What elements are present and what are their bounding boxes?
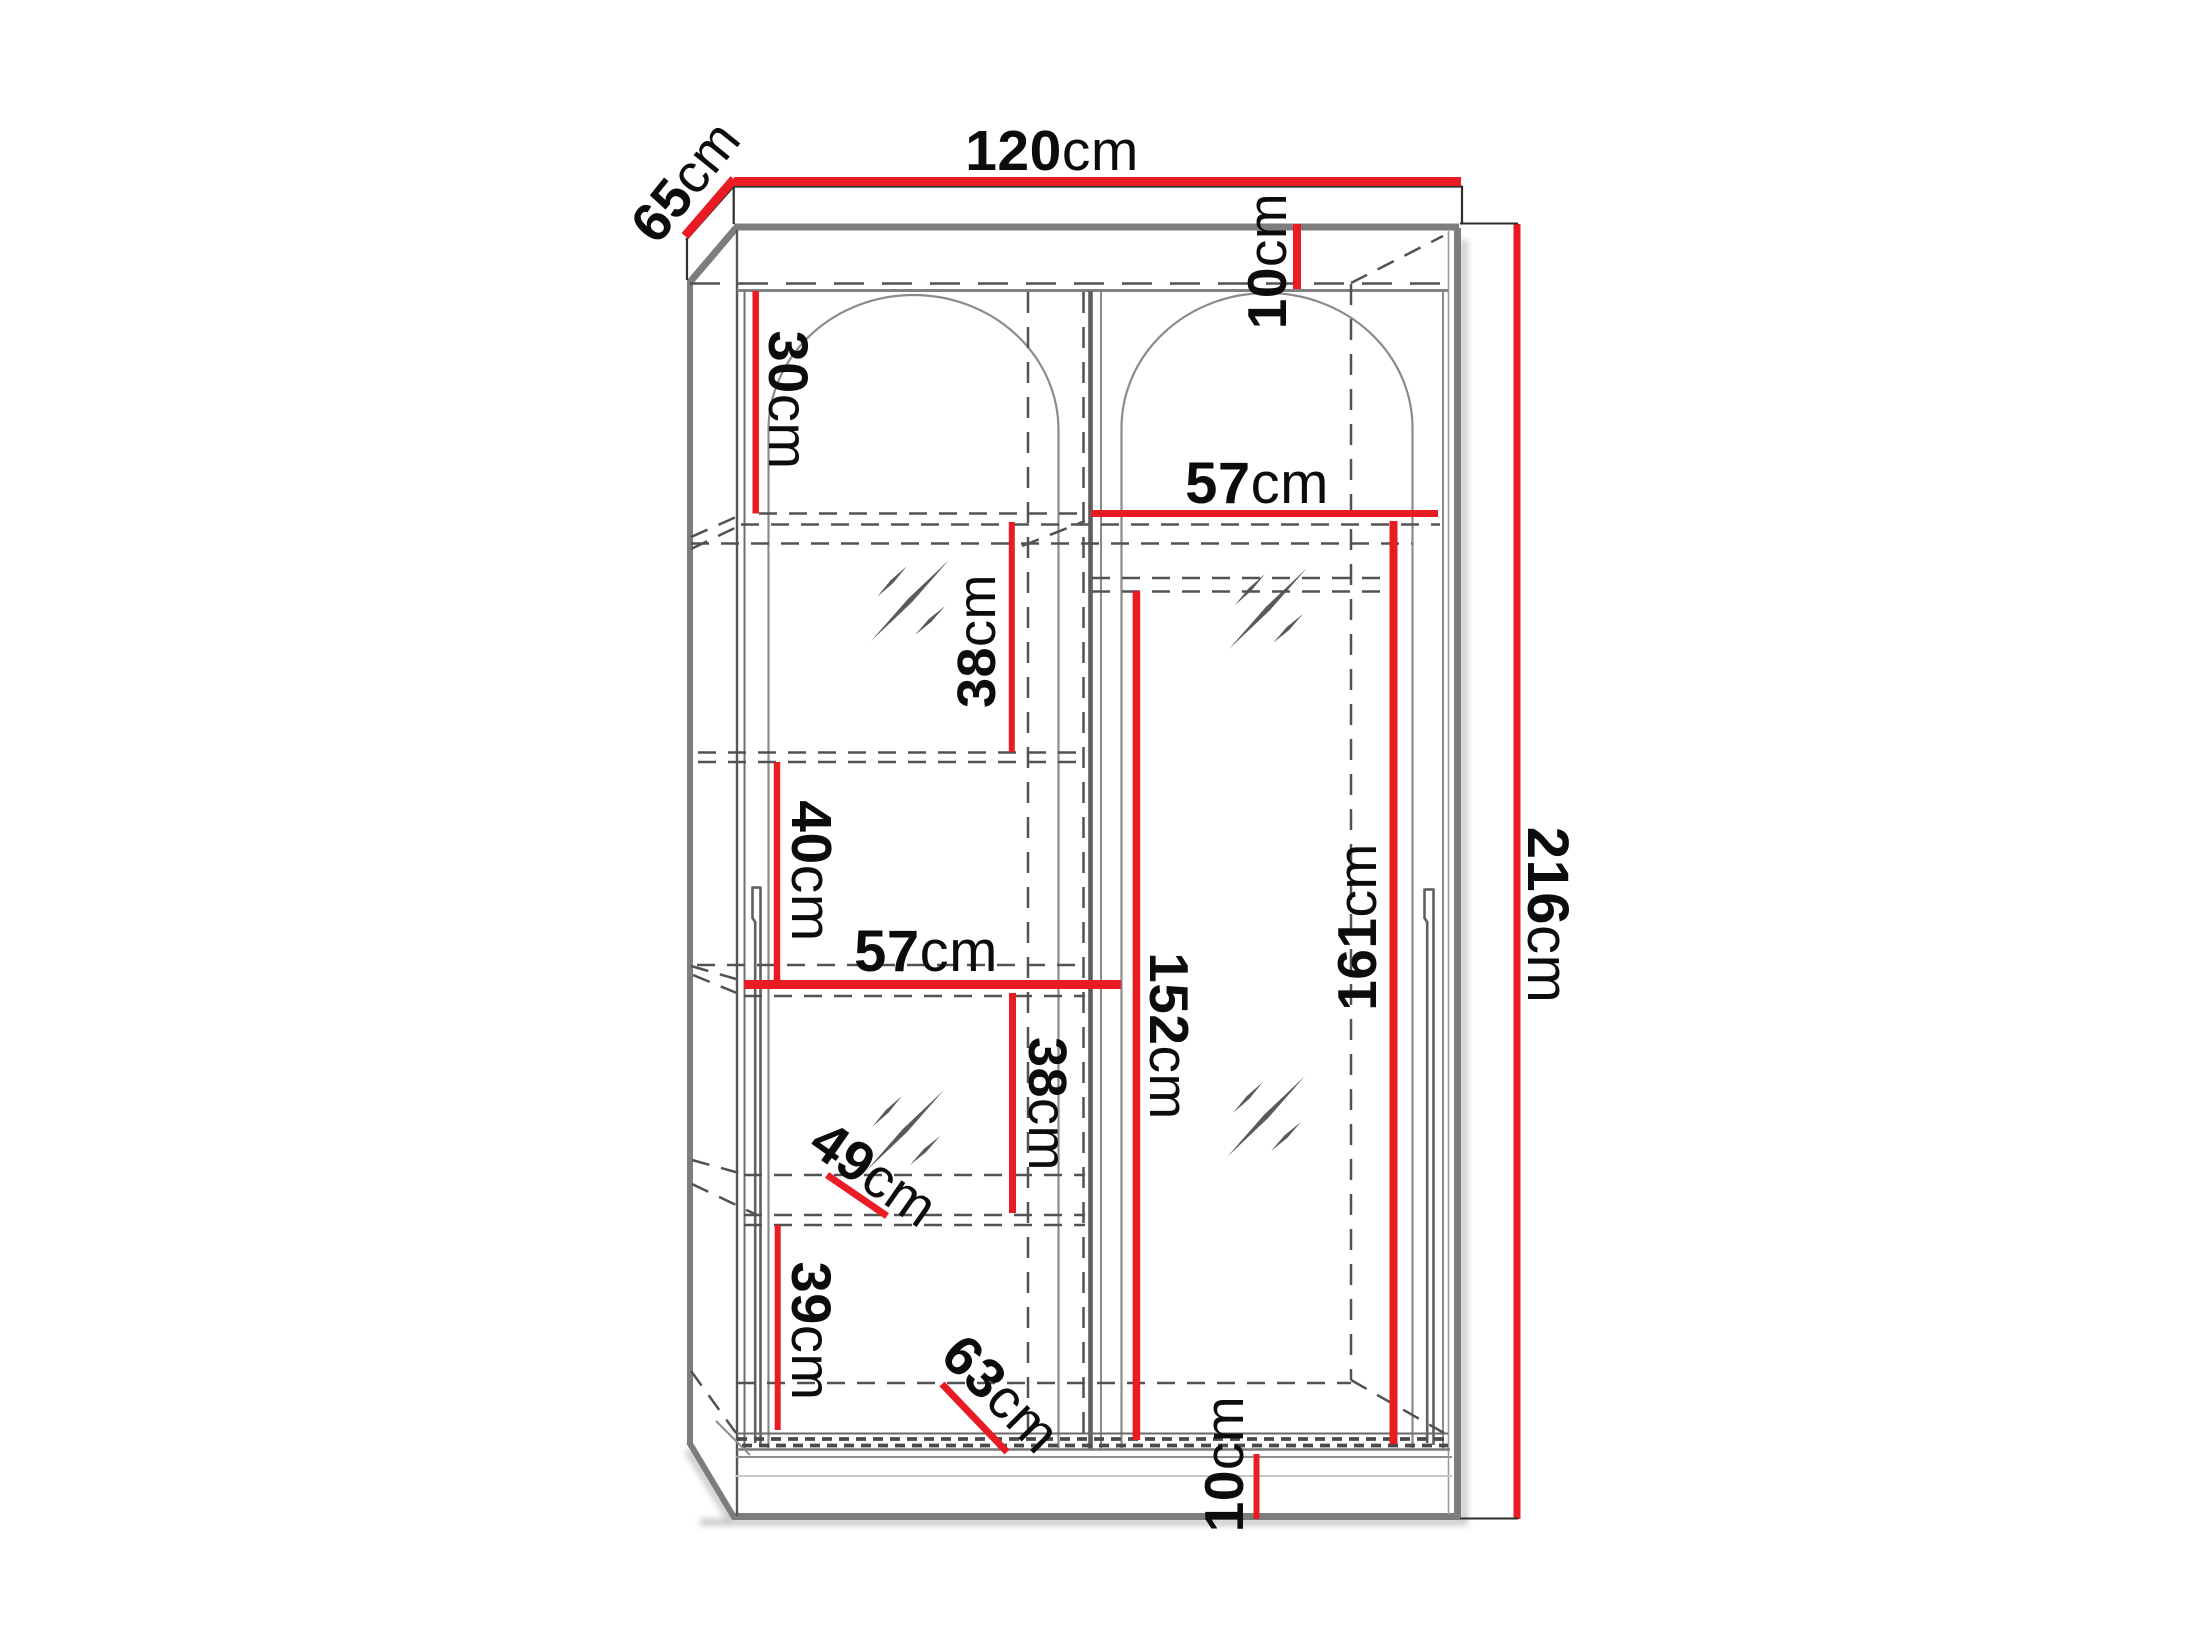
svg-text:30cm: 30cm: [757, 331, 820, 470]
svg-text:40cm: 40cm: [779, 800, 843, 941]
svg-text:57cm: 57cm: [1185, 451, 1329, 516]
svg-text:38cm: 38cm: [947, 574, 1007, 708]
svg-text:10cm: 10cm: [1236, 193, 1298, 330]
svg-text:39cm: 39cm: [780, 1262, 843, 1401]
svg-text:120cm: 120cm: [965, 119, 1139, 183]
svg-text:152cm: 152cm: [1138, 952, 1200, 1120]
svg-text:38cm: 38cm: [1017, 1037, 1077, 1171]
svg-text:161cm: 161cm: [1326, 843, 1388, 1011]
svg-text:57cm: 57cm: [854, 919, 998, 984]
svg-text:10cm: 10cm: [1193, 1396, 1255, 1533]
svg-text:216cm: 216cm: [1515, 827, 1580, 1004]
